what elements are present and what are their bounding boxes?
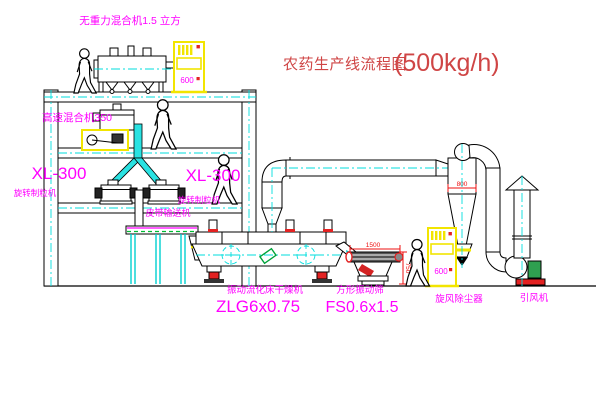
label-cyclone: 旋风除尘器 (435, 293, 483, 305)
person-figure-roof (74, 49, 96, 93)
label-fan: 引风机 (520, 292, 549, 304)
belt-conveyor (126, 226, 198, 284)
fan-base (516, 279, 545, 285)
diagram-canvas: 600 (0, 0, 600, 403)
label-high-speed-mixer: 高速混合机350 (42, 111, 112, 124)
dryer-feet (204, 266, 332, 283)
fan-motor (528, 261, 541, 278)
cabinet-roof-display: 600 (180, 76, 194, 85)
diagram-title: 农药生产线流程图 (283, 56, 407, 73)
vibrating-screen: 1500 750 (346, 242, 411, 285)
person-figure-ground (406, 240, 430, 287)
induced-draft-fan (505, 176, 545, 286)
label-screen-model: FS0.6x1.5 (326, 299, 399, 316)
label-granulator-right-model: XL-300 (186, 166, 241, 185)
granulator-left (95, 180, 137, 204)
label-granulator-left-name: 旋转制粒机 (14, 188, 57, 198)
diagram-title-capacity: (500kg/h) (394, 49, 500, 77)
label-granulator-right-name: 旋转制粒机 (178, 195, 221, 205)
label-screen-name: 方形振动筛 (336, 284, 384, 296)
control-cabinet-roof: 600 (171, 42, 207, 92)
label-gravity-mixer: 无重力混合机1.5 立方 (79, 14, 181, 27)
label-dryer-model: ZLG6x0.75 (216, 297, 300, 316)
control-cabinet-ground: 600 (425, 228, 459, 286)
discharge-column (135, 190, 143, 226)
label-belt-conveyor: 皮带输送机 (145, 207, 190, 218)
screen-length-dim: 1500 (366, 242, 381, 249)
label-granulator-left-model: XL-300 (32, 164, 87, 183)
label-dryer-name: 振动流化床干燥机 (227, 284, 304, 296)
high-speed-mixer (82, 104, 134, 150)
flow-diagram-svg: 600 (0, 0, 600, 403)
gravity-free-mixer (94, 46, 174, 94)
person-figure-level2 (151, 100, 176, 149)
cabinet-ground-display: 600 (434, 267, 448, 276)
